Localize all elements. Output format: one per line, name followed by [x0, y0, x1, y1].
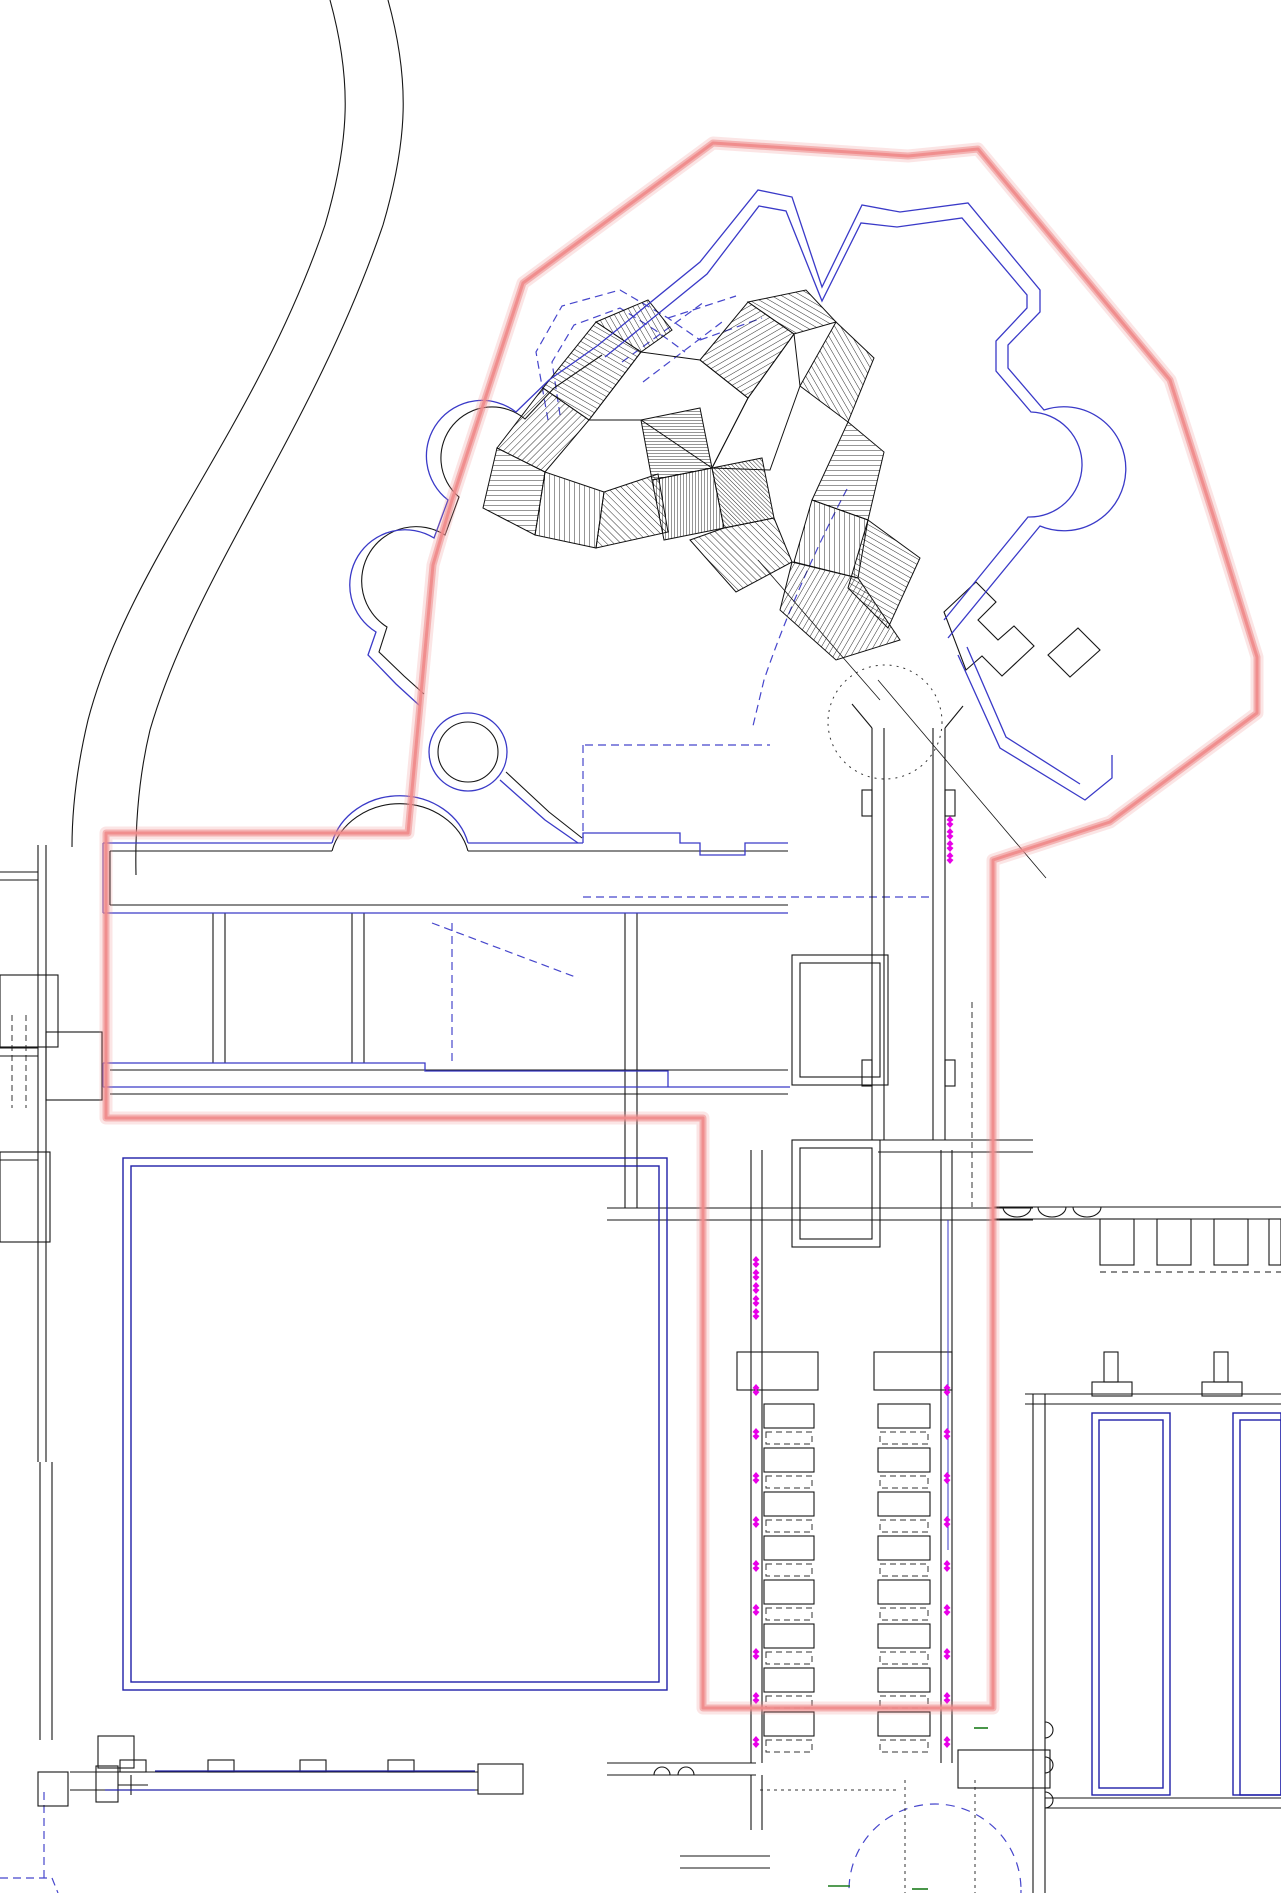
- site-plan-svg: [0, 0, 1281, 1893]
- site-plan-image: [0, 0, 1281, 1893]
- plan-drawing-canvas: [0, 0, 1281, 1893]
- hatched-roof-panels-item: [652, 468, 724, 540]
